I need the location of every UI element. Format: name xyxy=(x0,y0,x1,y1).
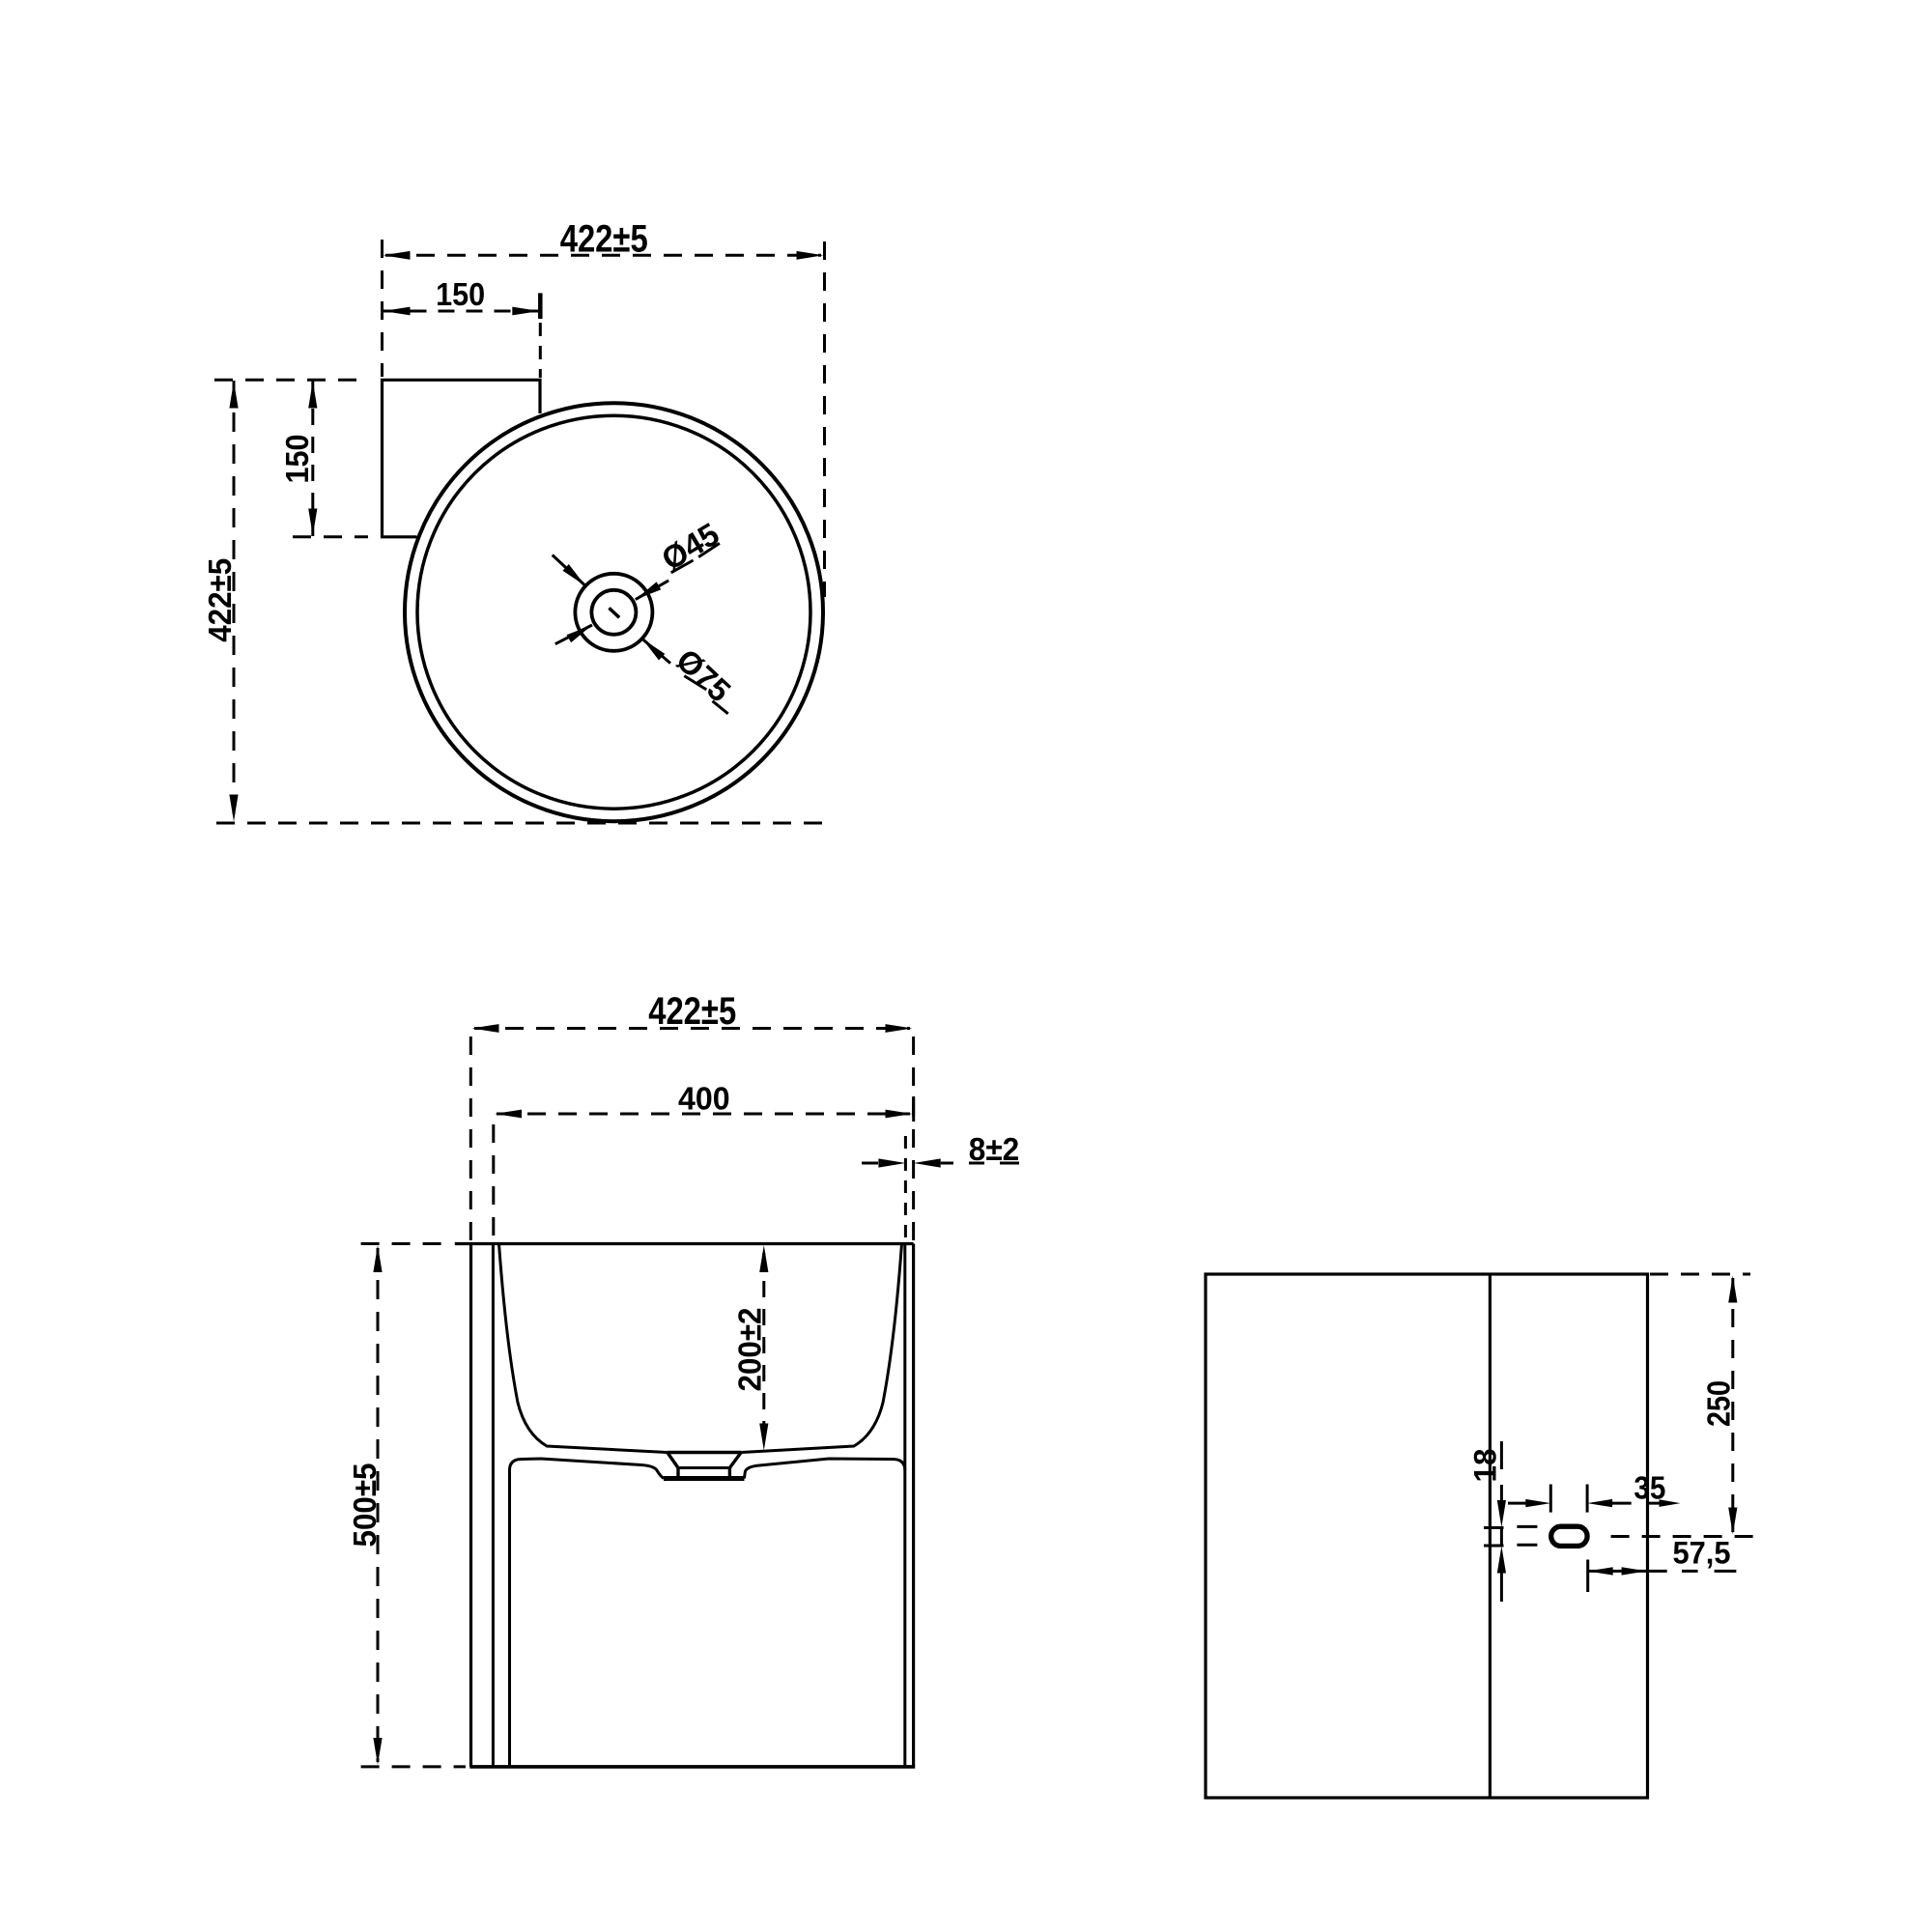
svg-text:250: 250 xyxy=(1701,1380,1737,1427)
svg-text:57,5: 57,5 xyxy=(1673,1536,1731,1571)
svg-text:422±5: 422±5 xyxy=(648,990,736,1033)
svg-text:500±5: 500±5 xyxy=(347,1463,383,1548)
svg-text:200±2: 200±2 xyxy=(732,1308,768,1392)
svg-text:400: 400 xyxy=(678,1081,730,1117)
svg-text:422±5: 422±5 xyxy=(202,558,238,642)
svg-text:150: 150 xyxy=(279,435,315,484)
svg-text:18: 18 xyxy=(1468,1449,1503,1483)
svg-text:8±2: 8±2 xyxy=(969,1131,1020,1167)
svg-text:35: 35 xyxy=(1634,1469,1665,1505)
svg-text:150: 150 xyxy=(436,276,485,312)
svg-text:422±5: 422±5 xyxy=(560,218,648,261)
